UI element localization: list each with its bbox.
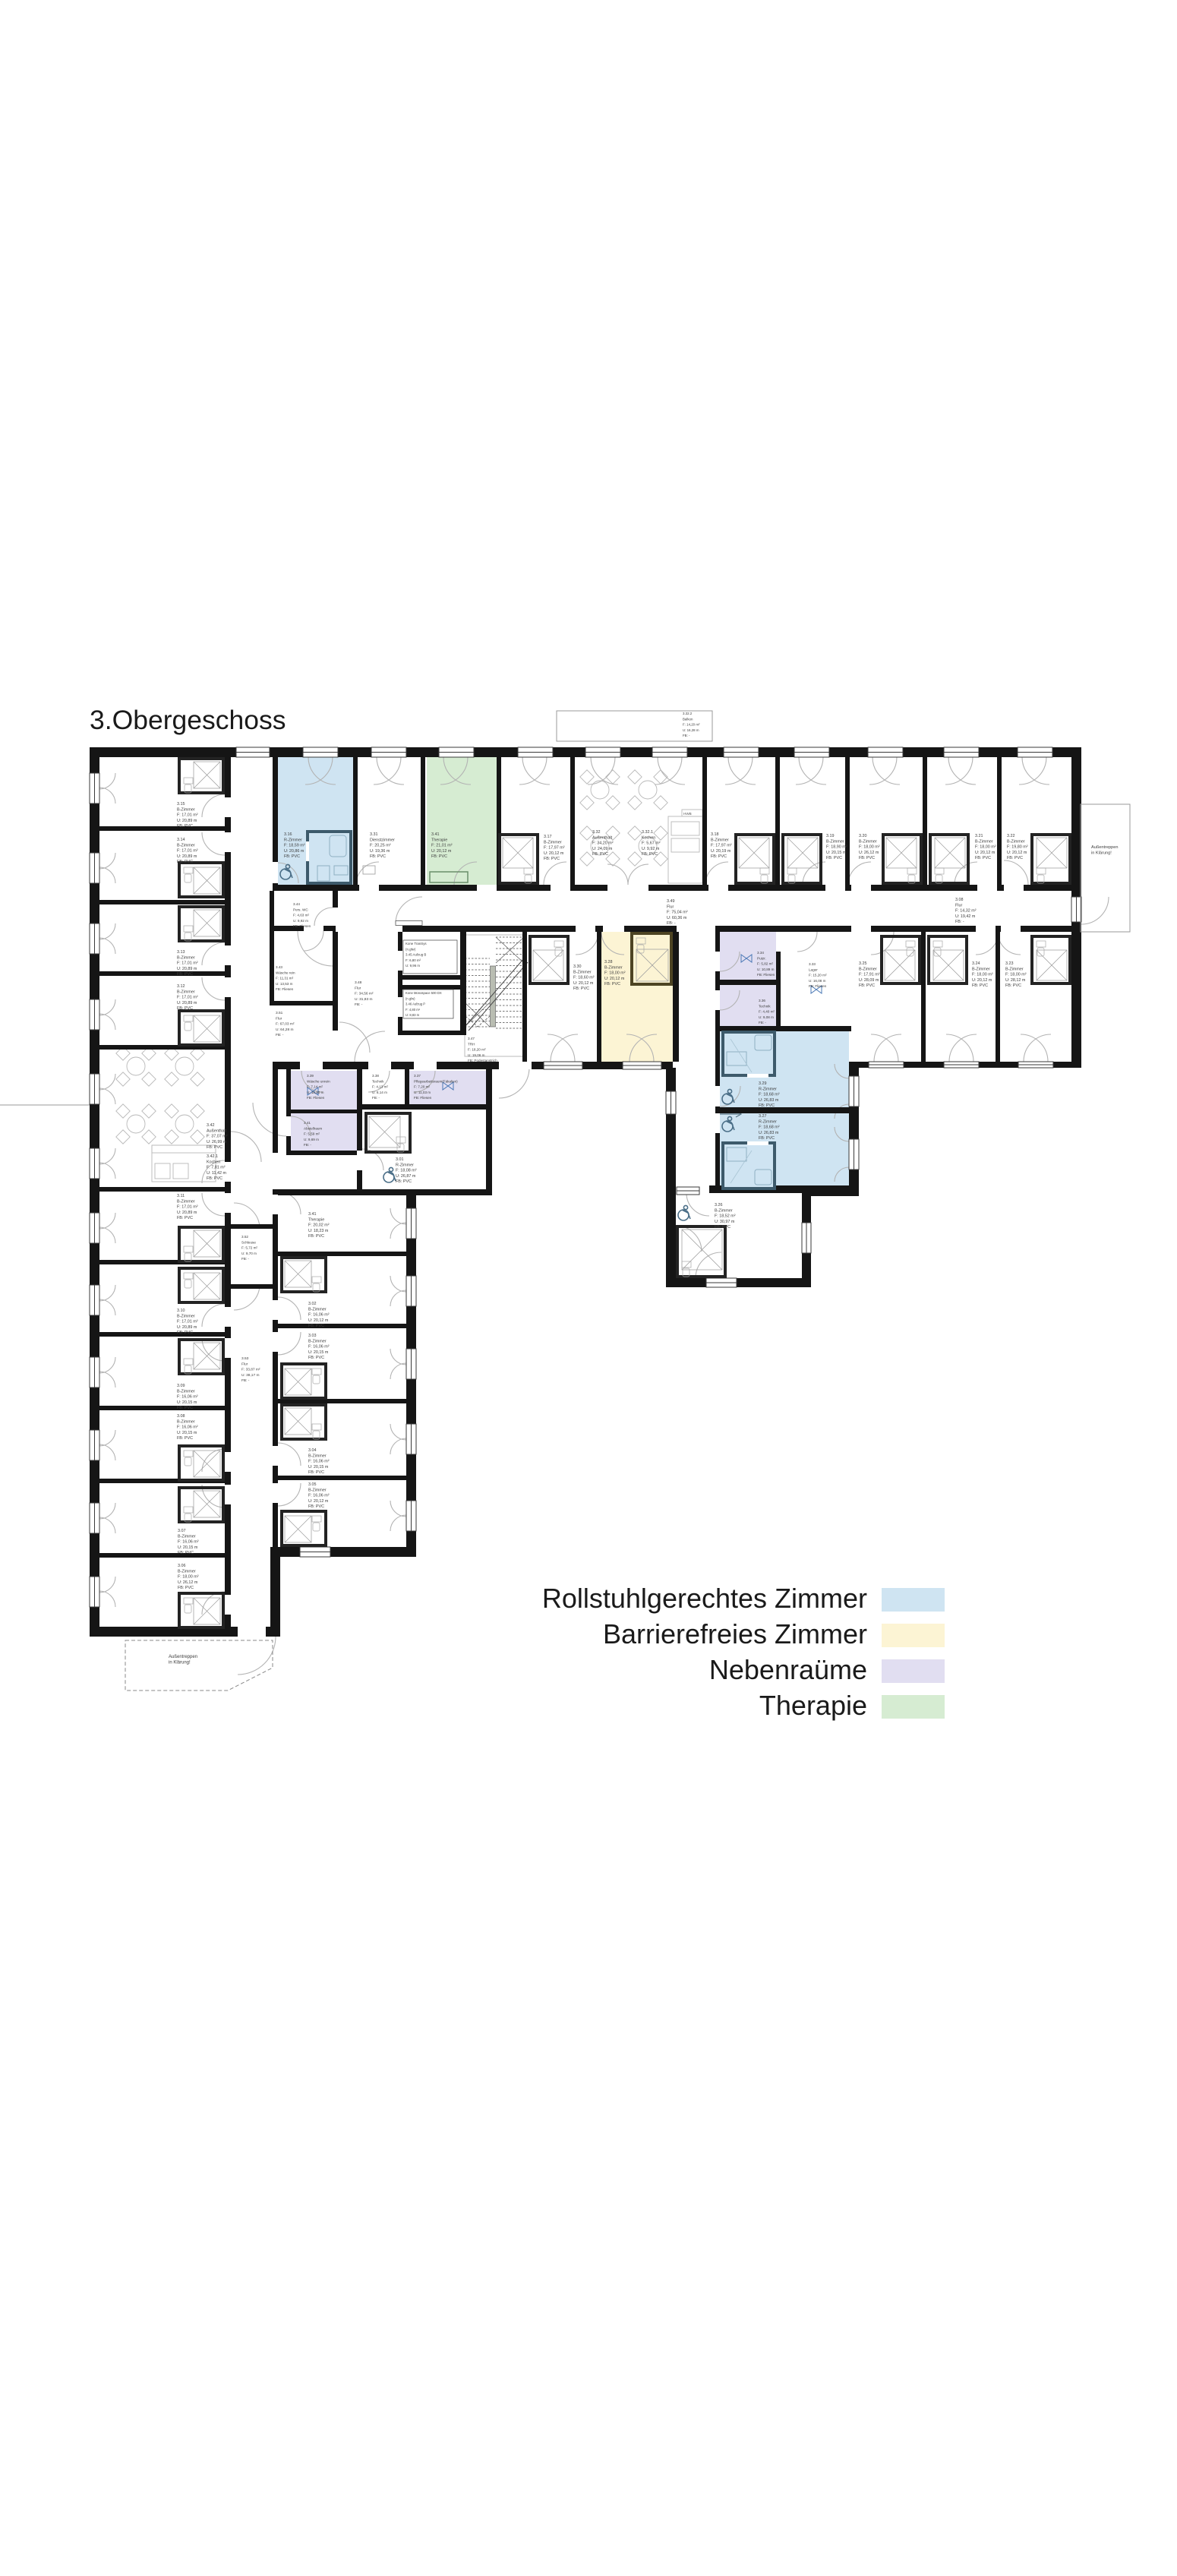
svg-text:Rollstuhlgerechtes Zimmer: Rollstuhlgerechtes Zimmer	[542, 1583, 867, 1614]
svg-text:3.Obergeschoss: 3.Obergeschoss	[90, 705, 286, 735]
svg-text:Therapie: Therapie	[759, 1690, 867, 1721]
svg-text:Barrierefreies Zimmer: Barrierefreies Zimmer	[603, 1618, 867, 1649]
svg-text:HWB: HWB	[683, 812, 692, 816]
svg-text:Nebenraüme: Nebenraüme	[709, 1654, 867, 1685]
